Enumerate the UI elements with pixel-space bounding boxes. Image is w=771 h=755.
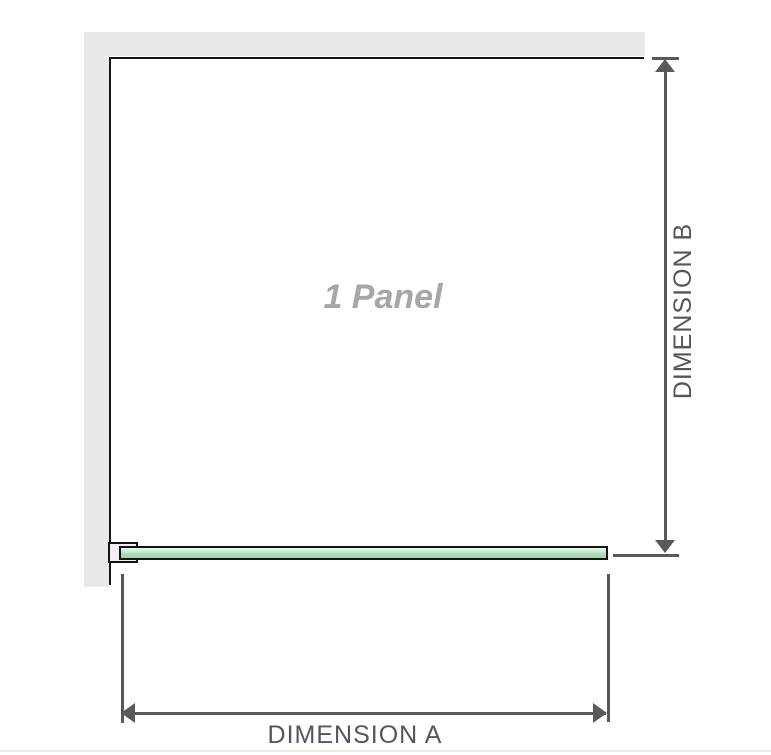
panel-dimension-diagram: 1 Panel DIMENSION B DIMENSION A <box>0 0 771 755</box>
panel-outline-top <box>109 57 644 59</box>
dimension-b-label: DIMENSION B <box>669 111 699 511</box>
dimension-a-line <box>123 712 606 715</box>
arrow-down-icon <box>655 540 675 553</box>
glass-panel-bar <box>119 546 608 560</box>
arrow-left-icon <box>121 703 135 723</box>
wall-top-band <box>84 32 645 56</box>
dimension-a-extension-right <box>607 574 610 722</box>
arrow-right-icon <box>593 703 607 723</box>
dimension-b-line <box>664 62 667 546</box>
dimension-a-label: DIMENSION A <box>205 721 505 750</box>
panel-outline-left <box>109 57 111 585</box>
wall-left-strip <box>84 32 109 587</box>
arrow-up-icon <box>655 59 675 72</box>
panel-count-label: 1 Panel <box>283 278 483 317</box>
dimension-a-extension-left <box>121 574 124 723</box>
dimension-b-tick-bottom <box>613 554 679 557</box>
page-bottom-divider <box>0 750 771 752</box>
